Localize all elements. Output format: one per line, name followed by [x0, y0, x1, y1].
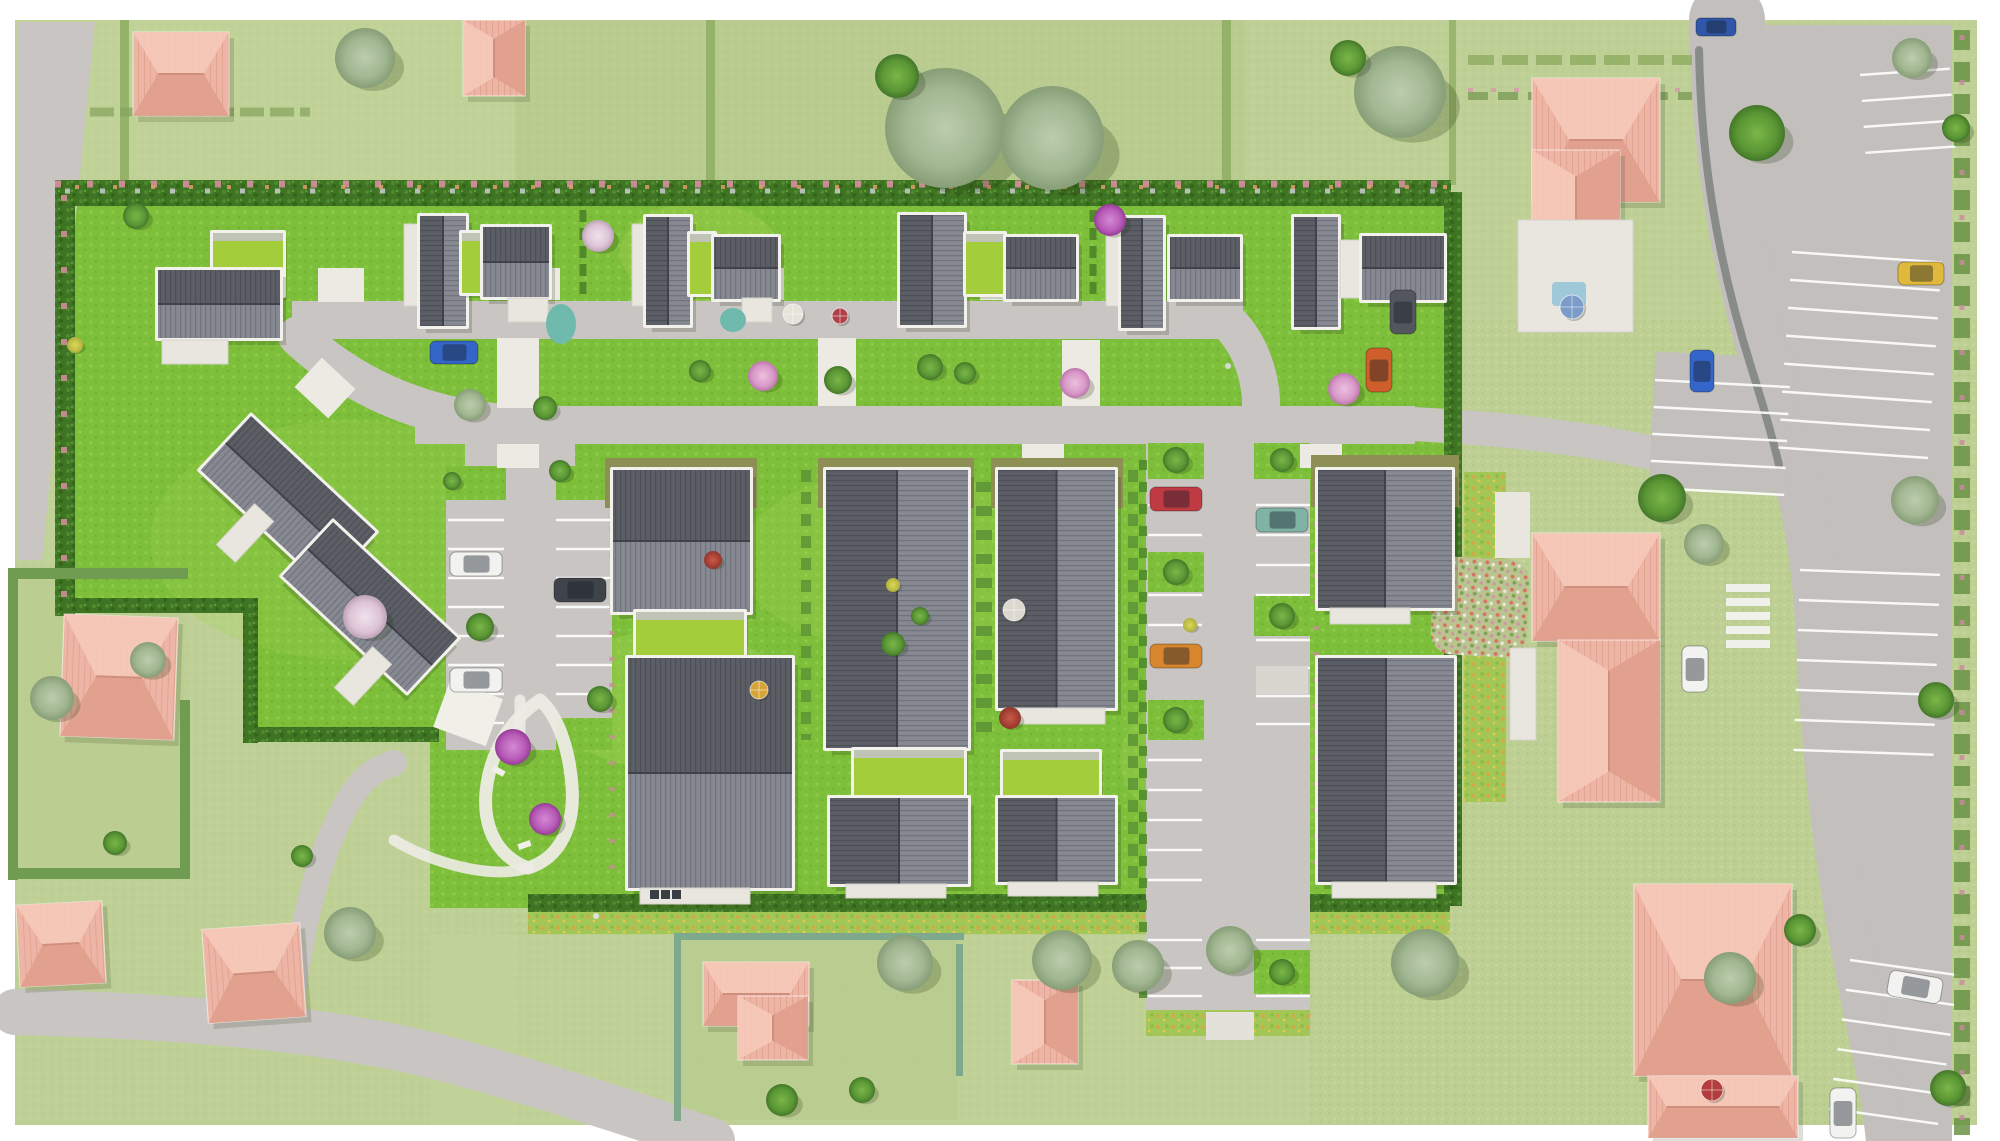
bin [672, 890, 681, 899]
new-house [1003, 234, 1082, 306]
site-plan-render: Aerial 3D site plan — residential develo… [0, 0, 2000, 1141]
new-house [155, 267, 286, 345]
collective-building [823, 467, 974, 755]
terrace [1008, 882, 1098, 896]
bin [650, 890, 659, 899]
collective-building [995, 795, 1121, 889]
terrace [1332, 882, 1436, 898]
meadow-strip [528, 912, 1146, 934]
hedge-pocket-south [956, 944, 963, 1076]
new-house [1167, 234, 1246, 306]
new-house [711, 234, 784, 306]
existing-house-sw [202, 922, 312, 1029]
terrace [508, 298, 548, 322]
green-roof-link [851, 747, 968, 802]
pool-round [546, 304, 576, 344]
parking-lot-upper-right [1649, 351, 1796, 493]
hedgerow [1222, 20, 1231, 188]
paver-stall [1256, 666, 1308, 694]
terrace [1330, 608, 1410, 624]
car-teal [1256, 508, 1308, 532]
terrace [742, 298, 772, 322]
hedge-garden-pocket [60, 598, 256, 613]
car-orange [1150, 644, 1202, 668]
hedge-pocket-sw [8, 868, 188, 879]
person [593, 913, 599, 919]
collective-building [995, 467, 1121, 715]
terrace [404, 224, 418, 306]
sidewalk-pad [497, 338, 539, 408]
pool-round [720, 308, 746, 332]
carport [1340, 240, 1360, 298]
bin [661, 890, 670, 899]
hedgerow [120, 20, 129, 188]
existing-house-se [1648, 1076, 1803, 1141]
green-roof-link [1000, 749, 1103, 803]
existing-house-s [1012, 980, 1083, 1070]
hedge-pocket-sw [180, 700, 190, 879]
driveway-pad [318, 268, 364, 302]
collective-building [1315, 655, 1460, 889]
field-patch [515, 20, 1245, 185]
existing-house-s [738, 996, 813, 1066]
hedge-pocket-sw [8, 568, 188, 579]
collective-building [610, 467, 756, 619]
terrace [162, 340, 228, 364]
hedge-garden-pocket [243, 727, 439, 742]
car-white [1830, 1088, 1856, 1138]
green-roof-link [633, 609, 748, 663]
existing-house-sw [16, 901, 111, 994]
car-red [1150, 487, 1202, 511]
site-plan-canvas [0, 0, 2000, 1141]
collective-building [625, 655, 798, 895]
hedge-pocket-south [674, 933, 681, 1121]
existing-house-e [1532, 533, 1665, 647]
hedge-west [55, 180, 75, 616]
drive-pad-e4 [1495, 492, 1530, 558]
car-white [450, 552, 502, 576]
existing-house [463, 20, 530, 102]
hedge-pocket-sw [8, 568, 18, 880]
car-blue [1690, 350, 1714, 392]
hedge-garden-pocket [243, 598, 258, 743]
car-orange [1366, 348, 1392, 392]
garage-green-roof [963, 231, 1008, 299]
terrace [1106, 226, 1119, 306]
collective-building [827, 795, 974, 891]
car-white [1682, 646, 1708, 692]
existing-house-e [1558, 640, 1665, 808]
car-yellow [1898, 262, 1944, 285]
hedge-pocket-south [674, 933, 964, 940]
terrace [846, 884, 946, 898]
car-dark [554, 578, 606, 602]
terrace [1510, 648, 1536, 740]
car-white [450, 668, 502, 692]
existing-house [133, 32, 234, 122]
car-gray [1390, 290, 1416, 334]
existing-house-w [60, 614, 183, 746]
sidewalk-pad [497, 444, 539, 468]
new-house [897, 212, 970, 332]
car-blue [1696, 18, 1736, 36]
collective-building [1315, 467, 1458, 615]
new-house [1291, 214, 1344, 334]
person [1225, 363, 1231, 369]
hedge-south [528, 894, 1146, 912]
hedgerow [706, 20, 715, 188]
path-pad [1206, 1012, 1254, 1040]
new-house [480, 224, 555, 304]
car-blue [430, 341, 478, 364]
